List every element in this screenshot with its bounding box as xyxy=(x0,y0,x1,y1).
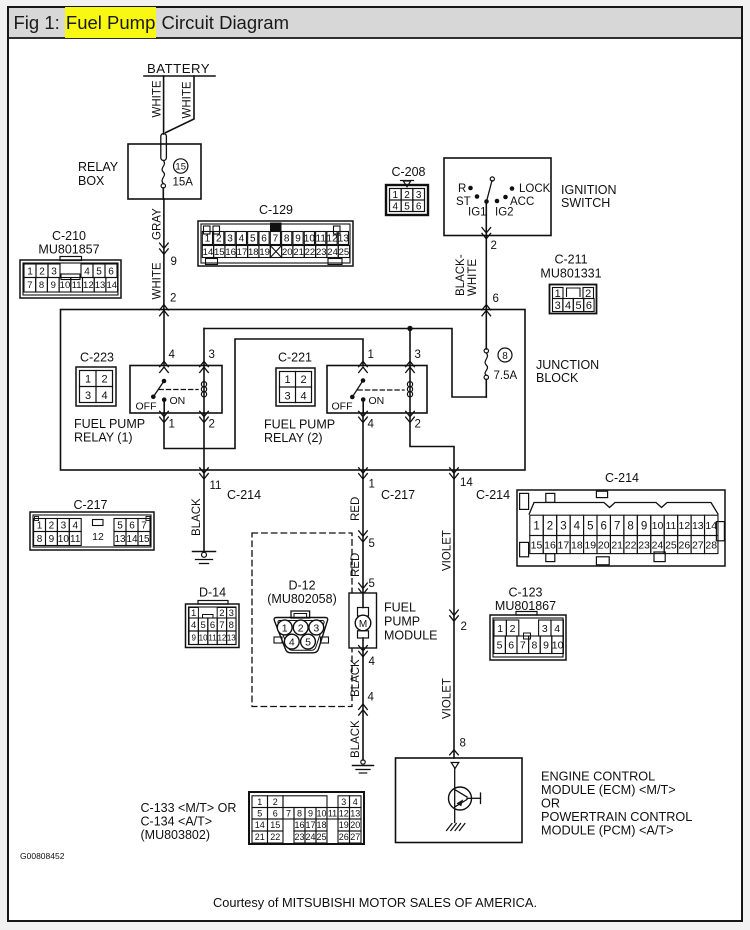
svg-text:14: 14 xyxy=(106,280,117,291)
svg-text:4: 4 xyxy=(393,201,399,212)
svg-text:1: 1 xyxy=(368,349,374,361)
svg-text:3: 3 xyxy=(85,390,91,402)
svg-text:18: 18 xyxy=(248,247,259,258)
svg-text:3: 3 xyxy=(416,190,422,201)
svg-text:11: 11 xyxy=(328,808,337,818)
svg-text:7: 7 xyxy=(219,620,224,631)
svg-text:13: 13 xyxy=(692,520,704,532)
svg-text:4: 4 xyxy=(369,656,376,668)
svg-text:3: 3 xyxy=(229,608,234,619)
svg-text:3: 3 xyxy=(51,266,57,277)
svg-text:4: 4 xyxy=(368,419,375,431)
svg-text:24: 24 xyxy=(305,832,315,842)
svg-text:OR: OR xyxy=(541,797,560,811)
svg-text:5: 5 xyxy=(96,266,102,277)
svg-text:R: R xyxy=(458,183,466,195)
svg-text:2: 2 xyxy=(300,374,306,386)
svg-text:RELAY (1): RELAY (1) xyxy=(74,431,133,445)
svg-text:4: 4 xyxy=(353,797,358,807)
svg-text:26: 26 xyxy=(679,539,691,551)
svg-text:JUNCTION: JUNCTION xyxy=(536,358,599,372)
svg-text:2: 2 xyxy=(491,240,497,252)
svg-text:5: 5 xyxy=(369,538,375,550)
svg-text:8: 8 xyxy=(502,351,508,362)
svg-text:12: 12 xyxy=(326,234,338,245)
svg-text:19: 19 xyxy=(259,247,270,258)
svg-text:12: 12 xyxy=(339,808,349,818)
svg-text:10: 10 xyxy=(60,280,71,291)
svg-text:G00808452: G00808452 xyxy=(20,851,65,861)
svg-text:1: 1 xyxy=(533,520,539,532)
svg-text:24: 24 xyxy=(327,247,338,258)
svg-text:3: 3 xyxy=(555,300,561,312)
svg-text:4: 4 xyxy=(574,520,581,532)
svg-text:WHITE: WHITE xyxy=(151,262,163,299)
svg-text:ON: ON xyxy=(369,395,385,407)
svg-text:ENGINE CONTROL: ENGINE CONTROL xyxy=(541,770,655,784)
svg-text:2: 2 xyxy=(273,797,278,807)
svg-text:19: 19 xyxy=(339,820,349,830)
svg-text:5: 5 xyxy=(587,520,593,532)
svg-text:15: 15 xyxy=(531,539,543,551)
svg-text:3: 3 xyxy=(415,349,421,361)
svg-text:IG2: IG2 xyxy=(495,207,514,219)
svg-text:BLACK: BLACK xyxy=(350,720,362,758)
svg-text:IG1: IG1 xyxy=(468,207,487,219)
svg-text:5: 5 xyxy=(117,521,123,532)
svg-text:6: 6 xyxy=(493,293,499,305)
svg-text:4: 4 xyxy=(239,234,245,245)
svg-text:10: 10 xyxy=(316,808,326,818)
svg-text:POWERTRAIN CONTROL: POWERTRAIN CONTROL xyxy=(541,810,692,824)
svg-text:VIOLET: VIOLET xyxy=(442,530,454,571)
svg-text:13: 13 xyxy=(338,234,350,245)
svg-text:RELAY (2): RELAY (2) xyxy=(264,431,323,445)
svg-text:2: 2 xyxy=(547,520,553,532)
svg-text:14: 14 xyxy=(460,477,473,489)
svg-text:1: 1 xyxy=(497,623,503,635)
svg-text:8: 8 xyxy=(531,640,537,652)
svg-text:5: 5 xyxy=(575,300,581,312)
svg-text:15: 15 xyxy=(138,534,150,545)
svg-text:(MU803802): (MU803802) xyxy=(141,828,210,842)
svg-text:5: 5 xyxy=(257,808,262,818)
svg-text:RELAY: RELAY xyxy=(78,160,119,174)
svg-text:4: 4 xyxy=(84,266,90,277)
svg-text:LOCK: LOCK xyxy=(519,183,551,195)
svg-text:26: 26 xyxy=(339,832,349,842)
svg-text:18: 18 xyxy=(316,820,326,830)
svg-text:1: 1 xyxy=(284,374,290,386)
svg-text:11: 11 xyxy=(316,234,327,245)
svg-text:C-217: C-217 xyxy=(381,488,415,502)
svg-text:7.5A: 7.5A xyxy=(494,370,518,382)
svg-text:1: 1 xyxy=(169,419,175,431)
svg-text:4: 4 xyxy=(300,391,306,403)
svg-text:13: 13 xyxy=(227,634,236,643)
svg-text:6: 6 xyxy=(508,640,514,652)
svg-text:24: 24 xyxy=(652,539,664,551)
svg-text:5: 5 xyxy=(369,578,375,590)
svg-text:8: 8 xyxy=(37,534,43,545)
svg-text:3: 3 xyxy=(341,797,346,807)
svg-text:BOX: BOX xyxy=(78,174,105,188)
svg-text:25: 25 xyxy=(665,539,677,551)
svg-text:5: 5 xyxy=(497,640,503,652)
svg-text:OFF: OFF xyxy=(332,401,353,413)
svg-text:3: 3 xyxy=(284,391,290,403)
svg-text:2: 2 xyxy=(415,419,421,431)
svg-text:9: 9 xyxy=(308,808,313,818)
svg-text:6: 6 xyxy=(108,266,114,277)
svg-text:14: 14 xyxy=(126,534,138,545)
svg-text:WHITE: WHITE xyxy=(182,81,194,118)
svg-text:7: 7 xyxy=(520,640,526,652)
svg-text:GRAY: GRAY xyxy=(151,208,163,240)
svg-text:D-12: D-12 xyxy=(288,579,315,593)
svg-text:14: 14 xyxy=(705,520,717,532)
svg-text:13: 13 xyxy=(95,280,106,291)
svg-text:11: 11 xyxy=(208,634,217,643)
svg-text:7: 7 xyxy=(273,234,279,245)
svg-text:MODULE: MODULE xyxy=(384,629,437,643)
svg-text:3: 3 xyxy=(209,349,215,361)
svg-text:11: 11 xyxy=(70,534,81,545)
svg-text:17: 17 xyxy=(305,820,315,830)
svg-text:11: 11 xyxy=(665,520,676,532)
svg-text:21: 21 xyxy=(255,832,265,842)
svg-text:23: 23 xyxy=(294,832,304,842)
svg-text:MU801857: MU801857 xyxy=(38,243,99,257)
svg-text:OFF: OFF xyxy=(136,401,157,413)
svg-text:2: 2 xyxy=(404,190,410,201)
svg-text:ACC: ACC xyxy=(510,196,534,208)
svg-text:BATTERY: BATTERY xyxy=(147,61,210,76)
svg-text:1: 1 xyxy=(205,234,211,245)
svg-text:2: 2 xyxy=(461,621,467,633)
svg-text:(MU802058): (MU802058) xyxy=(267,592,336,606)
svg-text:3: 3 xyxy=(313,622,319,634)
svg-text:9: 9 xyxy=(171,256,177,268)
svg-text:15: 15 xyxy=(270,820,280,830)
svg-text:9: 9 xyxy=(295,234,301,245)
svg-text:2: 2 xyxy=(298,622,304,634)
svg-text:11: 11 xyxy=(210,480,222,492)
svg-text:1: 1 xyxy=(27,266,33,277)
svg-text:SWITCH: SWITCH xyxy=(561,196,610,210)
svg-text:WHITE: WHITE xyxy=(152,80,164,117)
svg-text:23: 23 xyxy=(638,539,650,551)
svg-text:6: 6 xyxy=(586,300,592,312)
svg-text:4: 4 xyxy=(289,636,295,648)
svg-text:2: 2 xyxy=(219,608,224,619)
svg-text:21: 21 xyxy=(611,539,623,551)
svg-text:13: 13 xyxy=(350,808,360,818)
svg-text:2: 2 xyxy=(510,623,516,635)
svg-text:C-223: C-223 xyxy=(80,351,114,365)
svg-text:5: 5 xyxy=(404,201,410,212)
svg-text:BLACK-: BLACK- xyxy=(455,254,467,296)
svg-text:1: 1 xyxy=(257,797,262,807)
svg-text:16: 16 xyxy=(544,539,556,551)
svg-text:MODULE (ECM) <M/T>: MODULE (ECM) <M/T> xyxy=(541,783,676,797)
svg-text:2: 2 xyxy=(170,293,176,305)
svg-text:Courtesy of MITSUBISHI MOTOR S: Courtesy of MITSUBISHI MOTOR SALES OF AM… xyxy=(213,895,537,910)
svg-text:28: 28 xyxy=(705,539,717,551)
svg-text:4: 4 xyxy=(101,390,107,402)
svg-text:12: 12 xyxy=(92,531,104,543)
svg-text:2: 2 xyxy=(209,419,215,431)
svg-text:2: 2 xyxy=(49,521,55,532)
svg-text:MODULE (PCM) <A/T>: MODULE (PCM) <A/T> xyxy=(541,824,674,838)
svg-text:4: 4 xyxy=(554,623,560,635)
svg-text:20: 20 xyxy=(282,247,293,258)
svg-text:5: 5 xyxy=(250,234,256,245)
svg-text:C-123: C-123 xyxy=(508,586,542,600)
svg-text:9: 9 xyxy=(543,640,549,652)
svg-text:C-214: C-214 xyxy=(227,488,261,502)
svg-text:9: 9 xyxy=(49,534,55,545)
svg-text:9: 9 xyxy=(641,520,647,532)
svg-text:15A: 15A xyxy=(173,177,194,189)
svg-text:6: 6 xyxy=(601,520,607,532)
svg-text:WHITE: WHITE xyxy=(467,259,479,296)
svg-text:D-14: D-14 xyxy=(199,586,226,600)
svg-text:10: 10 xyxy=(199,634,208,643)
svg-text:8: 8 xyxy=(229,620,234,631)
svg-text:C-214: C-214 xyxy=(476,488,510,502)
svg-text:16: 16 xyxy=(225,247,236,258)
svg-text:20: 20 xyxy=(598,539,610,551)
svg-text:22: 22 xyxy=(270,832,280,842)
svg-text:8: 8 xyxy=(627,520,633,532)
svg-text:C-129: C-129 xyxy=(259,203,293,217)
svg-text:21: 21 xyxy=(293,247,304,258)
svg-text:6: 6 xyxy=(210,620,215,631)
svg-text:25: 25 xyxy=(316,832,326,842)
svg-text:6: 6 xyxy=(261,234,267,245)
svg-text:17: 17 xyxy=(237,247,248,258)
svg-text:10: 10 xyxy=(304,234,316,245)
svg-text:1: 1 xyxy=(37,521,43,532)
svg-text:C-133 <M/T> OR: C-133 <M/T> OR xyxy=(141,801,237,815)
svg-text:FUEL PUMP: FUEL PUMP xyxy=(74,417,145,431)
svg-text:7: 7 xyxy=(27,280,32,291)
svg-text:4: 4 xyxy=(72,521,78,532)
svg-text:BLACK: BLACK xyxy=(191,498,203,536)
svg-text:10: 10 xyxy=(552,640,564,652)
svg-text:10: 10 xyxy=(652,520,664,532)
svg-text:4: 4 xyxy=(169,349,176,361)
svg-text:7: 7 xyxy=(614,520,620,532)
svg-text:8: 8 xyxy=(460,738,466,750)
svg-text:1: 1 xyxy=(282,622,288,634)
svg-text:13: 13 xyxy=(114,534,126,545)
svg-text:9: 9 xyxy=(51,280,56,291)
svg-text:25: 25 xyxy=(339,247,350,258)
svg-text:BLACK: BLACK xyxy=(350,659,362,697)
svg-text:3: 3 xyxy=(227,234,233,245)
svg-text:27: 27 xyxy=(350,832,360,842)
svg-text:4: 4 xyxy=(191,620,196,631)
svg-text:RED: RED xyxy=(350,497,362,521)
svg-text:8: 8 xyxy=(284,234,290,245)
svg-text:10: 10 xyxy=(58,534,70,545)
svg-text:4: 4 xyxy=(368,692,375,704)
svg-text:12: 12 xyxy=(217,634,226,643)
svg-text:C-211: C-211 xyxy=(554,253,587,267)
svg-text:6: 6 xyxy=(416,201,422,212)
svg-text:8: 8 xyxy=(297,808,302,818)
svg-text:12: 12 xyxy=(679,520,691,532)
svg-text:16: 16 xyxy=(294,820,304,830)
svg-text:23: 23 xyxy=(316,247,327,258)
svg-text:20: 20 xyxy=(350,820,360,830)
svg-text:12: 12 xyxy=(83,280,94,291)
svg-text:FUEL: FUEL xyxy=(384,601,416,615)
svg-text:5: 5 xyxy=(305,636,311,648)
svg-text:22: 22 xyxy=(305,247,316,258)
svg-text:7: 7 xyxy=(286,808,291,818)
svg-text:C-214: C-214 xyxy=(605,471,639,485)
svg-text:C-208: C-208 xyxy=(391,165,425,179)
svg-text:ON: ON xyxy=(170,395,186,407)
svg-text:6: 6 xyxy=(273,808,278,818)
svg-text:27: 27 xyxy=(692,539,704,551)
svg-text:11: 11 xyxy=(72,280,82,291)
svg-text:VIOLET: VIOLET xyxy=(442,678,454,719)
svg-text:C-134 <A/T>: C-134 <A/T> xyxy=(141,815,213,829)
svg-text:22: 22 xyxy=(625,539,637,551)
svg-text:15: 15 xyxy=(175,162,186,173)
svg-text:M: M xyxy=(359,619,367,630)
svg-text:14: 14 xyxy=(203,247,214,258)
svg-text:14: 14 xyxy=(255,820,265,830)
svg-text:C-221: C-221 xyxy=(278,351,312,365)
svg-text:1: 1 xyxy=(369,479,375,491)
svg-text:4: 4 xyxy=(565,300,571,312)
svg-text:2: 2 xyxy=(216,234,222,245)
svg-text:6: 6 xyxy=(129,521,135,532)
svg-text:3: 3 xyxy=(560,520,566,532)
svg-text:9: 9 xyxy=(191,634,196,643)
svg-text:19: 19 xyxy=(584,539,596,551)
svg-text:3: 3 xyxy=(61,521,67,532)
svg-text:IGNITION: IGNITION xyxy=(561,183,617,197)
svg-text:18: 18 xyxy=(571,539,583,551)
svg-text:2: 2 xyxy=(101,374,107,386)
svg-text:5: 5 xyxy=(200,620,205,631)
svg-text:C-210: C-210 xyxy=(52,229,86,243)
svg-text:8: 8 xyxy=(39,280,44,291)
svg-text:FUEL PUMP: FUEL PUMP xyxy=(264,418,335,432)
svg-text:1: 1 xyxy=(393,190,399,201)
svg-text:MU801331: MU801331 xyxy=(540,267,601,281)
svg-text:1: 1 xyxy=(85,374,91,386)
svg-text:17: 17 xyxy=(558,539,570,551)
svg-text:15: 15 xyxy=(214,247,225,258)
svg-text:7: 7 xyxy=(141,521,147,532)
svg-text:1: 1 xyxy=(191,608,196,619)
svg-text:3: 3 xyxy=(542,623,548,635)
svg-text:C-217: C-217 xyxy=(73,498,107,512)
svg-text:2: 2 xyxy=(39,266,45,277)
svg-text:BLOCK: BLOCK xyxy=(536,371,579,385)
svg-text:PUMP: PUMP xyxy=(384,615,420,629)
